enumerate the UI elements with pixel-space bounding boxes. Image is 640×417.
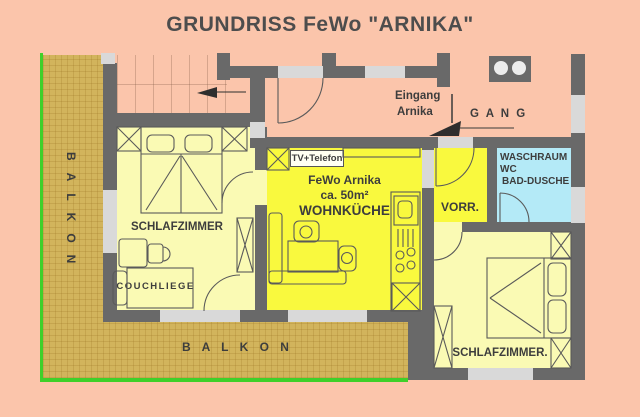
entrance-label-1: Eingang [395, 90, 440, 102]
corridor-fixture-icon [489, 56, 531, 82]
tv-phone-label: TV+Telefon [290, 150, 344, 167]
wall-segment [103, 113, 258, 127]
vorraum-label: VORR. [430, 200, 490, 214]
window [160, 310, 207, 322]
wall-segment [250, 78, 265, 122]
balcony-edge-line-bottom [40, 378, 408, 382]
window [365, 66, 405, 78]
wall-pillar [322, 53, 336, 66]
wall-segment [487, 137, 497, 232]
wall-segment [217, 53, 230, 80]
balcony-bottom-label: B A L K O N [150, 340, 325, 354]
wall-segment [250, 137, 571, 148]
living-kitchen-label: WOHNKÜCHE [267, 203, 422, 218]
window [250, 122, 265, 138]
balcony-left-label: BALKON [64, 152, 78, 275]
apartment-name: FeWo Arnika [267, 173, 422, 187]
washroom-label-2: WC [500, 164, 517, 175]
window [571, 187, 585, 223]
window [101, 53, 115, 64]
apartment-area: ca. 50m² [267, 188, 422, 202]
couch-label: COUCHLIEGE [113, 281, 198, 292]
corridor-label: G A N G [470, 108, 527, 120]
door-opening [255, 170, 267, 205]
wall-segment [323, 66, 365, 78]
window [288, 310, 367, 322]
wall-pillar [437, 53, 450, 87]
washroom-label-1: WASCHRAUM [500, 152, 567, 163]
wall-segment [255, 127, 267, 310]
washroom-label-3: BAD-DUSCHE [502, 176, 569, 187]
entrance-label-2: Arnika [397, 106, 433, 118]
door-opening [434, 222, 462, 232]
page-title: GRUNDRISS FeWo "ARNIKA" [0, 13, 640, 37]
bedroom-right-label: SCHLAFZIMMER. [430, 347, 570, 359]
door-opening [278, 66, 323, 78]
floor-plan: GRUNDRISS FeWo "ARNIKA" BALKON B A L K O… [0, 0, 640, 417]
wall-segment [230, 66, 278, 78]
window [571, 95, 585, 133]
wall-segment [103, 310, 434, 322]
bedroom-left-label: SCHLAFZIMMER [107, 221, 247, 233]
window [468, 368, 533, 380]
stair-tread-line [117, 84, 227, 85]
door-opening [422, 150, 434, 188]
corridor-door-arc [278, 78, 323, 123]
door-opening [438, 137, 473, 148]
door-opening [207, 310, 240, 322]
